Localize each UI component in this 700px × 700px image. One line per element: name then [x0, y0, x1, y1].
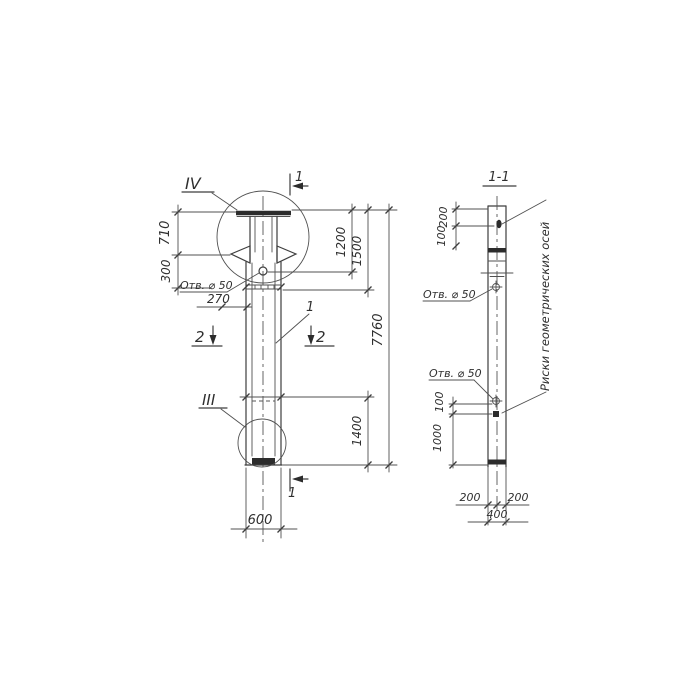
shoulder-chevron-left	[231, 246, 250, 263]
dim-100-mid-label: 100	[433, 392, 446, 413]
dim-1400: 1400	[350, 391, 372, 472]
dim-600: 600	[231, 468, 297, 538]
section-mark-1-top: 1	[290, 170, 308, 195]
dim-1200-label: 1200	[334, 226, 348, 257]
section-title-text: 1-1	[488, 170, 509, 185]
section-mark-1-bottom: 1	[288, 469, 308, 501]
drawing-sheet: IV III 1 1 2	[0, 0, 700, 700]
section-mark-2-right: 2	[305, 326, 334, 346]
dim-1500: 1500	[350, 204, 372, 297]
dim-400-label: 400	[487, 508, 508, 521]
section-band-bottom	[488, 460, 506, 465]
detail-label-iii: III	[199, 391, 245, 427]
joint-band-upper	[243, 284, 285, 291]
section-top-dims: 200 100	[435, 202, 494, 250]
hole-note-lower-text: Отв. ⌀ 50	[429, 367, 482, 380]
section-view: 1-1	[423, 170, 552, 526]
axis-mark-top	[496, 220, 501, 228]
axis-mark-bottom	[493, 411, 499, 417]
section-mark-2-left: 2	[192, 326, 222, 346]
dim-1400-label: 1400	[350, 415, 364, 446]
dim-710-label: 710	[158, 221, 173, 246]
bottom-plug	[252, 458, 275, 465]
hole-section-upper	[490, 281, 502, 293]
dim-270-label: 270	[207, 292, 230, 306]
dim-7760-label: 7760	[371, 313, 386, 346]
hole-note-upper-text: Отв. ⌀ 50	[423, 288, 476, 301]
dim-200-top-label: 200	[437, 207, 450, 228]
technical-drawing: IV III 1 1 2	[0, 0, 700, 700]
section-title: 1-1	[483, 170, 516, 186]
hole-note-section-upper: Отв. ⌀ 50	[423, 288, 492, 301]
dim-270: 270	[197, 292, 252, 311]
column-shaft	[246, 262, 281, 465]
neck-tenon	[250, 217, 277, 263]
part-callout-text: 1	[306, 300, 314, 315]
dim-100-top-label: 100	[435, 226, 448, 247]
section-2-left-text: 2	[195, 328, 205, 346]
hole-note-front-text: Отв. ⌀ 50	[180, 279, 233, 292]
section-2-right-text: 2	[316, 328, 326, 346]
axis-marks-note-text: Риски геометрических осей	[538, 221, 552, 391]
dim-7760: 7760	[371, 204, 393, 472]
dim-1000-label: 1000	[431, 424, 444, 452]
section-bottom-dims: 200 200 400	[456, 468, 529, 526]
axis-marks-note: Риски геометрических осей	[502, 200, 552, 413]
section-lower-dims: 100 1000	[431, 392, 492, 469]
section-1-bottom-text: 1	[288, 486, 296, 501]
section-1-top-text: 1	[295, 170, 303, 185]
hole-section-lower	[490, 395, 502, 407]
detail-iii-text: III	[202, 391, 216, 409]
dim-300-label: 300	[159, 259, 173, 282]
joint-band-lower	[240, 394, 374, 402]
section-column	[488, 196, 506, 512]
shoulder-chevron-right	[277, 246, 296, 263]
dim-200-left-label: 200	[460, 491, 481, 504]
detail-label-iv: IV	[182, 174, 237, 210]
dim-200-right-label: 200	[508, 491, 529, 504]
section-band-upper	[488, 248, 506, 253]
front-view: IV III 1 1 2	[158, 170, 397, 546]
dim-1500-label: 1500	[350, 235, 364, 266]
detail-iv-text: IV	[185, 174, 202, 193]
dim-600-label: 600	[248, 513, 273, 528]
